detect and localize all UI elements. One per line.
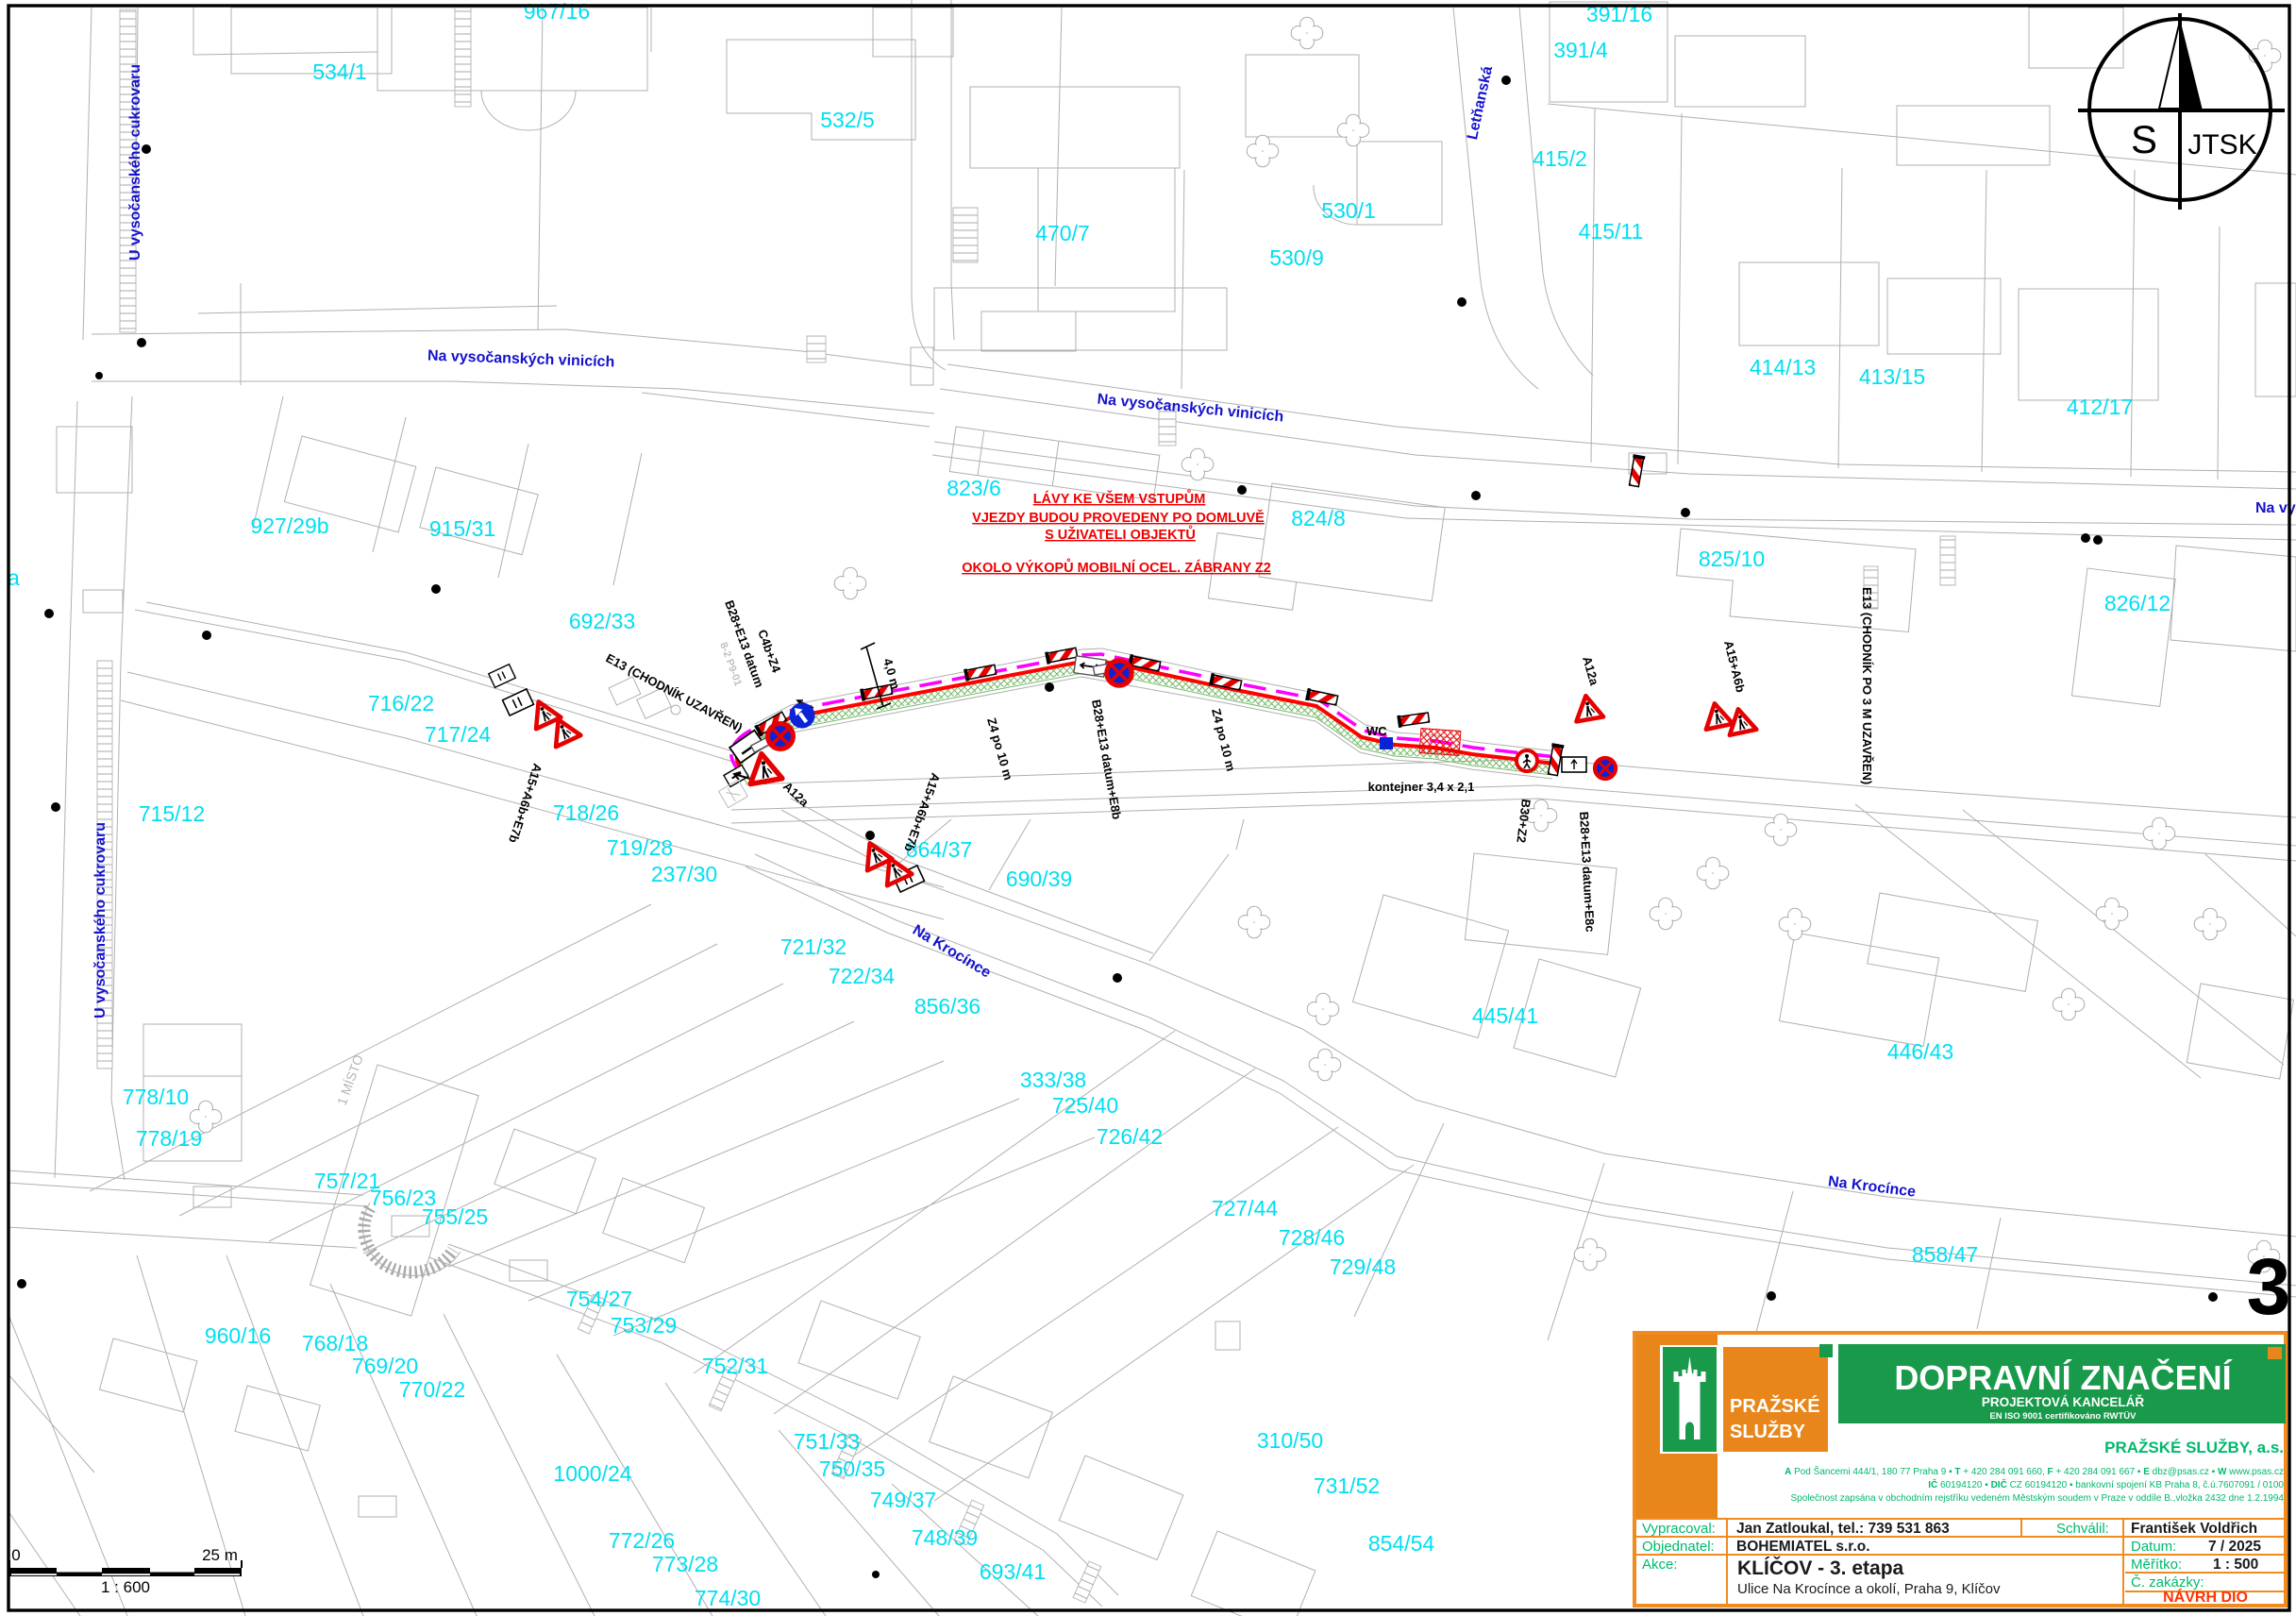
svg-text:NÁVRH DIO: NÁVRH DIO — [2163, 1588, 2248, 1606]
svg-text:530/1: 530/1 — [1321, 198, 1376, 223]
svg-text:967/16: 967/16 — [524, 0, 590, 24]
svg-text:769/20: 769/20 — [352, 1354, 418, 1378]
svg-text:770/22: 770/22 — [399, 1377, 465, 1402]
svg-text:690/39: 690/39 — [1006, 867, 1072, 891]
svg-text:7 / 2025: 7 / 2025 — [2208, 1539, 2261, 1555]
svg-text:kontejner 3,4 x 2,1: kontejner 3,4 x 2,1 — [1368, 780, 1475, 794]
svg-text:KLÍČOV - 3. etapa: KLÍČOV - 3. etapa — [1737, 1557, 1904, 1579]
svg-text:310/50: 310/50 — [1257, 1428, 1323, 1453]
svg-text:445/41: 445/41 — [1472, 1003, 1538, 1028]
svg-text:754/27: 754/27 — [566, 1287, 632, 1311]
svg-text:WC: WC — [1366, 724, 1387, 738]
svg-text:824/8: 824/8 — [1291, 506, 1346, 530]
svg-text:25 m: 25 m — [202, 1546, 238, 1564]
svg-text:858/47: 858/47 — [1912, 1242, 1978, 1267]
svg-text:415/2: 415/2 — [1533, 146, 1587, 171]
svg-text:772/26: 772/26 — [609, 1528, 675, 1553]
svg-text:446/43: 446/43 — [1887, 1039, 1953, 1064]
svg-text:Vypracoval:: Vypracoval: — [1642, 1521, 1716, 1537]
svg-text:333/38: 333/38 — [1020, 1068, 1086, 1092]
svg-text:3: 3 — [2247, 1242, 2291, 1331]
svg-text:826/12: 826/12 — [2104, 591, 2170, 615]
svg-text:1 : 500: 1 : 500 — [2213, 1557, 2258, 1573]
svg-text:413/15: 413/15 — [1859, 364, 1925, 389]
svg-text:748/39: 748/39 — [912, 1525, 978, 1550]
svg-text:750/35: 750/35 — [819, 1456, 885, 1481]
svg-text:726/42: 726/42 — [1097, 1124, 1163, 1149]
svg-text:1 : 600: 1 : 600 — [101, 1578, 150, 1596]
svg-text:VJEZDY BUDOU PROVEDENY PO DOML: VJEZDY BUDOU PROVEDENY PO DOMLUVĚ — [972, 509, 1265, 526]
svg-text:927/29b: 927/29b — [250, 513, 328, 538]
svg-text:693/41: 693/41 — [980, 1559, 1046, 1584]
svg-text:731/52: 731/52 — [1314, 1473, 1380, 1498]
svg-text:Č. zakázky:: Č. zakázky: — [2131, 1574, 2204, 1591]
svg-text:EN ISO 9001 certifikováno RWTÜ: EN ISO 9001 certifikováno RWTÜV — [1989, 1411, 2137, 1422]
svg-text:LÁVY KE VŠEM VSTUPŮM: LÁVY KE VŠEM VSTUPŮM — [1033, 489, 1206, 507]
svg-text:722/34: 722/34 — [829, 964, 896, 988]
svg-text:715/12: 715/12 — [139, 801, 205, 826]
svg-text:1000/24: 1000/24 — [553, 1461, 631, 1486]
svg-text:Měřítko:: Měřítko: — [2131, 1557, 2182, 1573]
svg-text:S: S — [2131, 117, 2157, 161]
svg-text:JTSK: JTSK — [2187, 129, 2256, 160]
svg-text:755/25: 755/25 — [422, 1204, 488, 1229]
svg-text:717/24: 717/24 — [425, 722, 492, 747]
svg-text:E13 (CHODNÍK PO 3 M UZAVŘEN): E13 (CHODNÍK PO 3 M UZAVŘEN) — [1860, 587, 1874, 784]
svg-text:721/32: 721/32 — [780, 934, 846, 959]
svg-text:BOHEMIATEL s.r.o.: BOHEMIATEL s.r.o. — [1736, 1539, 1870, 1555]
svg-text:729/48: 729/48 — [1330, 1254, 1396, 1279]
svg-text:773/28: 773/28 — [652, 1552, 718, 1576]
svg-text:IČ 60194120 ▪ DIČ CZ 60194120: IČ 60194120 ▪ DIČ CZ 60194120 ▪ bankovní… — [1928, 1478, 2284, 1490]
svg-text:534/1: 534/1 — [312, 59, 367, 84]
svg-text:718/26: 718/26 — [553, 800, 619, 825]
svg-text:728/46: 728/46 — [1279, 1225, 1345, 1250]
svg-text:391/4: 391/4 — [1553, 38, 1608, 62]
svg-text:Datum:: Datum: — [2131, 1539, 2176, 1555]
svg-text:Ulice Na Krocínce a okolí, Pra: Ulice Na Krocínce a okolí, Praha 9, Klíč… — [1737, 1581, 2001, 1597]
svg-text:752/31: 752/31 — [702, 1354, 768, 1378]
svg-text:OKOLO VÝKOPŮ MOBILNÍ OCEL. ZÁB: OKOLO VÝKOPŮ MOBILNÍ OCEL. ZÁBRANY Z2 — [962, 558, 1271, 576]
svg-text:PROJEKTOVÁ KANCELÁŘ: PROJEKTOVÁ KANCELÁŘ — [1982, 1395, 2145, 1409]
svg-text:532/5: 532/5 — [820, 108, 875, 132]
svg-text:SLUŽBY: SLUŽBY — [1730, 1420, 1806, 1442]
svg-text:412/17: 412/17 — [2067, 395, 2133, 419]
svg-text:753/29: 753/29 — [611, 1313, 677, 1338]
svg-text:Objednatel:: Objednatel: — [1642, 1539, 1715, 1555]
svg-text:768/18: 768/18 — [302, 1331, 368, 1355]
svg-text:PRAŽSKÉ: PRAŽSKÉ — [1730, 1394, 1820, 1417]
svg-text:778/19: 778/19 — [136, 1126, 202, 1151]
svg-text:S UŽIVATELI OBJEKTŮ: S UŽIVATELI OBJEKTŮ — [1045, 525, 1196, 543]
svg-text:823/6: 823/6 — [947, 476, 1001, 500]
svg-text:415/11: 415/11 — [1579, 219, 1644, 244]
svg-text:U vysočanského cukrovaru: U vysočanského cukrovaru — [127, 64, 143, 261]
svg-text:727/44: 727/44 — [1212, 1196, 1279, 1220]
svg-text:Schválil:: Schválil: — [2056, 1521, 2109, 1537]
svg-text:778/10: 778/10 — [123, 1085, 189, 1109]
svg-text:0: 0 — [11, 1546, 20, 1564]
svg-text:237/30: 237/30 — [651, 862, 717, 886]
svg-text:A Pod Šancemi 444/1, 180 77 Pr: A Pod Šancemi 444/1, 180 77 Praha 9 ▪ T … — [1785, 1465, 2284, 1477]
svg-text:725/40: 725/40 — [1052, 1093, 1118, 1118]
svg-text:751/33: 751/33 — [794, 1429, 860, 1454]
svg-text:DOPRAVNÍ ZNAČENÍ: DOPRAVNÍ ZNAČENÍ — [1894, 1357, 2232, 1397]
svg-text:470/7: 470/7 — [1035, 221, 1090, 245]
svg-text:774/30: 774/30 — [695, 1586, 761, 1610]
svg-text:960/16: 960/16 — [205, 1323, 271, 1348]
svg-text:716/22: 716/22 — [368, 691, 434, 715]
svg-text:856/36: 856/36 — [914, 994, 980, 1018]
svg-text:719/28: 719/28 — [607, 835, 673, 860]
svg-text:Společnost zapsána v obchodním: Společnost zapsána v obchodním rejstříku… — [1790, 1493, 2284, 1504]
svg-text:915/31: 915/31 — [429, 516, 495, 541]
svg-text:854/54: 854/54 — [1368, 1531, 1435, 1556]
svg-text:825/10: 825/10 — [1699, 547, 1765, 571]
svg-text:PRAŽSKÉ SLUŽBY, a.s.: PRAŽSKÉ SLUŽBY, a.s. — [2104, 1439, 2284, 1456]
svg-text:749/37: 749/37 — [870, 1488, 936, 1512]
svg-text:Akce:: Akce: — [1642, 1557, 1678, 1573]
svg-text:František Voldřich: František Voldřich — [2131, 1521, 2257, 1537]
svg-text:692/33: 692/33 — [569, 609, 635, 633]
svg-text:414/13: 414/13 — [1750, 355, 1816, 379]
svg-text:Jan Zatloukal, tel.: 739 531 8: Jan Zatloukal, tel.: 739 531 863 — [1736, 1521, 1950, 1537]
svg-text:U vysočanského cukrovaru: U vysočanského cukrovaru — [92, 822, 109, 1018]
svg-text:530/9: 530/9 — [1269, 245, 1324, 270]
